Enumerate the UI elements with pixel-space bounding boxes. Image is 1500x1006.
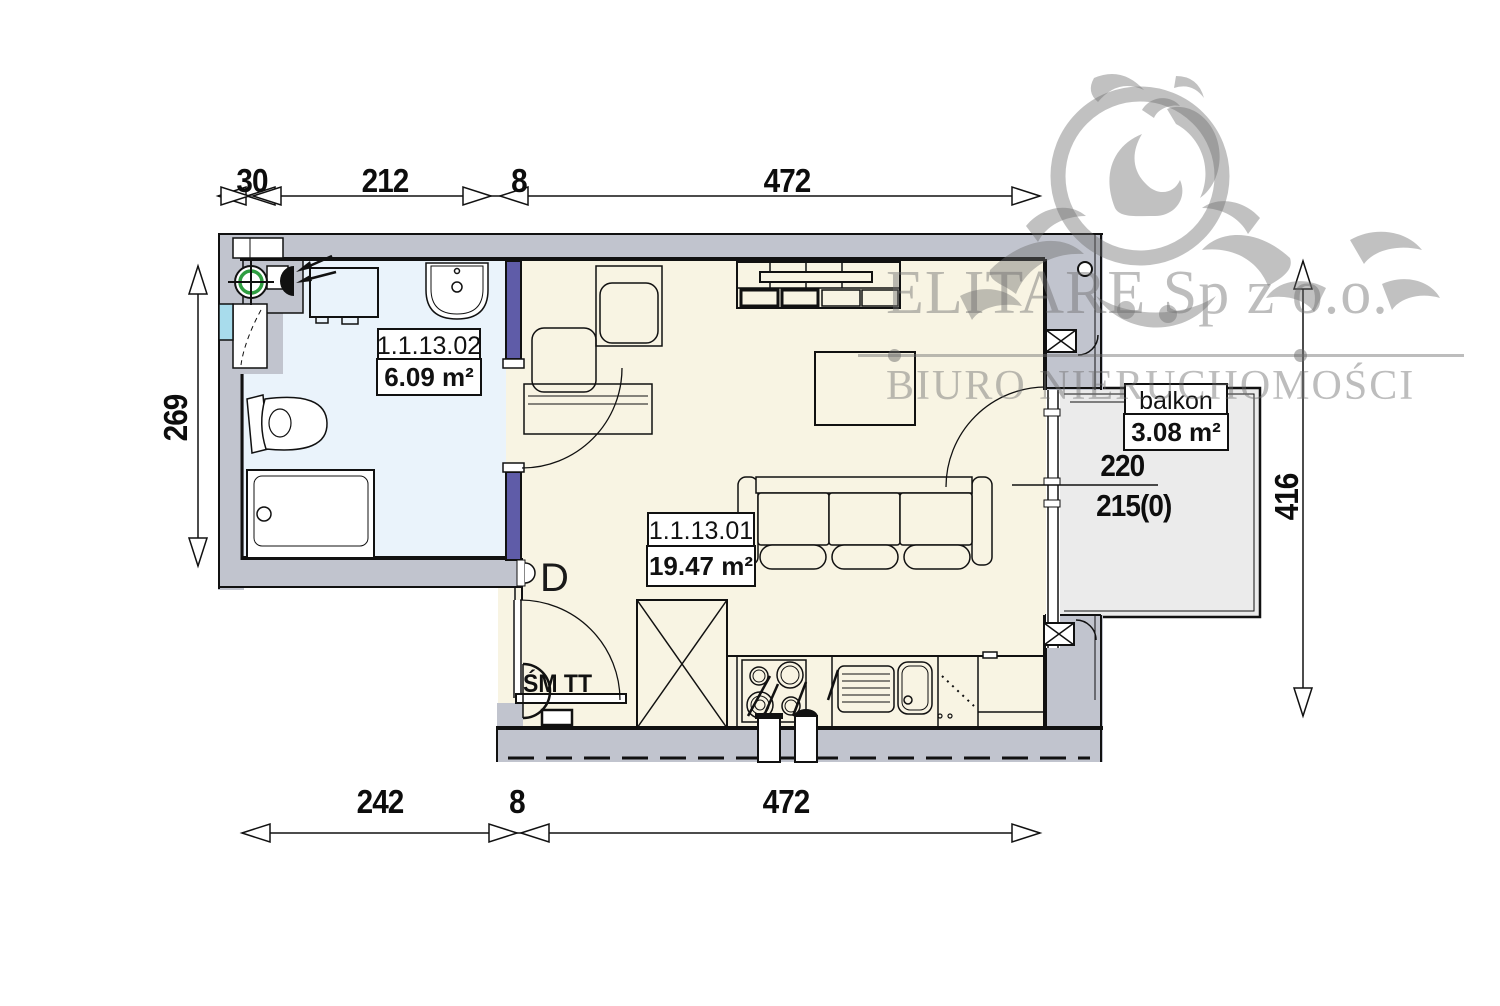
dim-window-width: 220 <box>1100 448 1144 484</box>
bathroom-area-box: 6.09 m² <box>376 358 482 396</box>
dim-bottom-472: 472 <box>750 783 822 821</box>
dim-window-sill: 215(0) <box>1096 488 1171 524</box>
door-label: D <box>540 556 569 601</box>
shower-tray <box>247 470 374 558</box>
meter-label: ŚM TT <box>523 670 592 699</box>
dim-top-8: 8 <box>501 162 537 200</box>
window-vent-cyan <box>219 304 233 340</box>
dim-bottom-8: 8 <box>499 783 535 821</box>
dim-bottom-242: 242 <box>344 783 416 821</box>
dim-top-30: 30 <box>225 162 279 200</box>
dim-left-269: 269 <box>157 386 195 451</box>
drain-circle <box>1078 262 1092 276</box>
floor-plan-page: 30 212 8 472 242 8 472 269 416 220 215(0… <box>0 0 1500 1006</box>
balcony-area-box: 3.08 m² <box>1123 413 1229 451</box>
living-area-box: 19.47 m² <box>646 545 756 587</box>
dim-right-416: 416 <box>1268 465 1306 530</box>
dim-top-472: 472 <box>751 162 823 200</box>
dim-top-212: 212 <box>349 162 421 200</box>
washbasin <box>426 263 488 319</box>
toilet <box>247 395 327 453</box>
sofa <box>738 477 992 569</box>
